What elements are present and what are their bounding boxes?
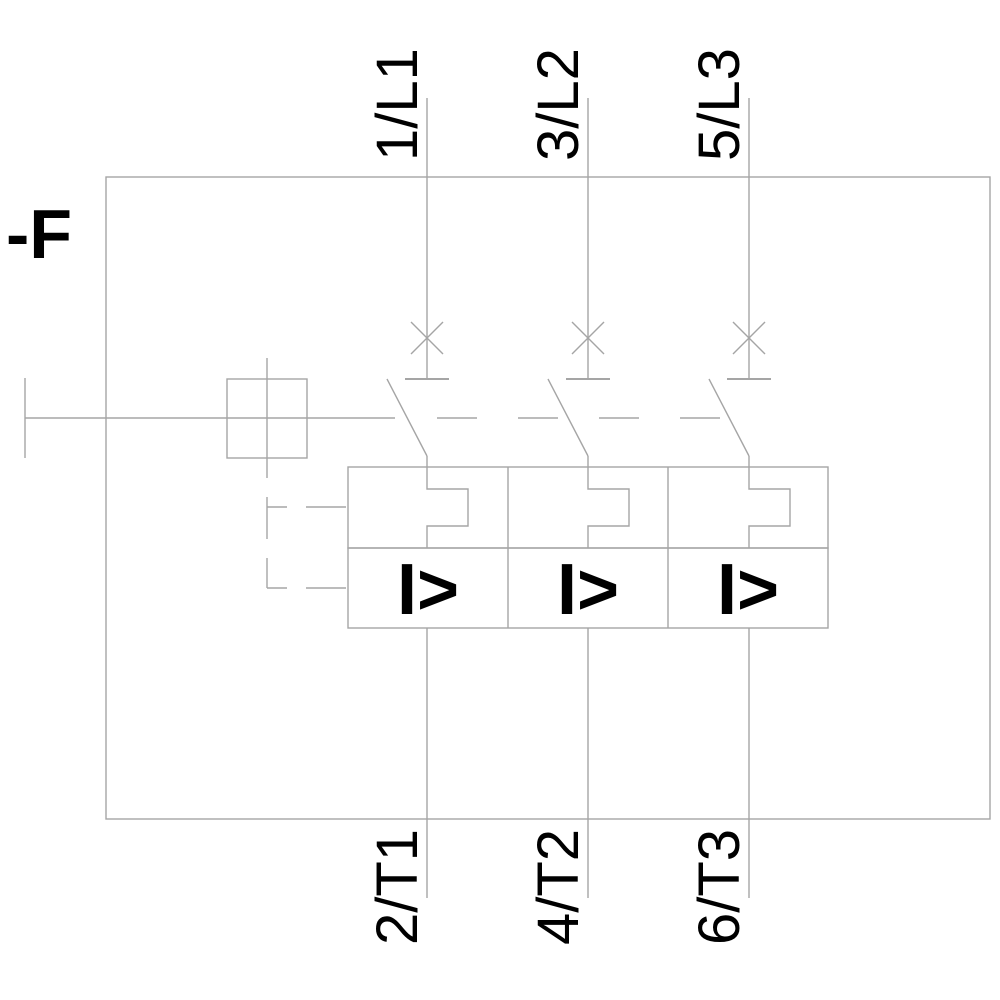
circuit-diagram: -F 1/L1 3/L2 5/L3 2/T1 4/T2 6/T3 I> I> I… [0,0,1000,1000]
pole2-thermal-overload-element [588,467,629,548]
device-tag: -F [6,195,72,273]
terminal-label-bottom-pole1: 2/T1 [365,829,430,945]
terminal-label-top-pole3: 5/L3 [687,48,752,161]
terminal-label-top-pole2: 3/L2 [526,48,591,161]
pole2-magnetic-trip-symbol: I> [557,550,619,630]
enclosure-border [106,177,990,819]
schematic-canvas: -F 1/L1 3/L2 5/L3 2/T1 4/T2 6/T3 I> I> I… [0,0,1000,1000]
pole3-magnetic-trip-symbol: I> [717,550,779,630]
pole3-thermal-overload-element [749,467,790,548]
pole1-magnetic-trip-symbol: I> [397,550,459,630]
terminal-label-top-pole1: 1/L1 [365,48,430,161]
terminal-label-bottom-pole2: 4/T2 [526,829,591,945]
pole1-thermal-overload-element [427,467,468,548]
terminal-label-bottom-pole3: 6/T3 [687,829,752,945]
